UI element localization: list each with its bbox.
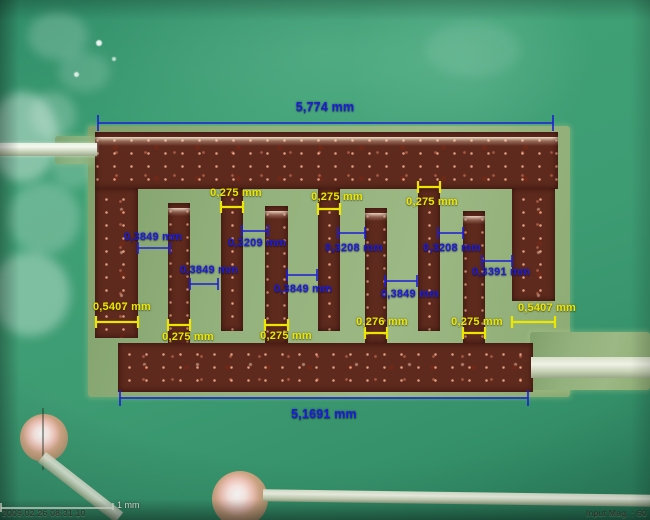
dimension-label: 0,276 mm	[356, 316, 408, 328]
scale-bar-label: 1 mm	[117, 500, 140, 510]
timestamp: 2009.02.26 08:31:10	[2, 508, 86, 518]
dimension-label: 0,275 mm	[210, 187, 262, 199]
dimension-label: 0,5407 mm	[518, 302, 576, 314]
dimension-label: 0,3849 mm	[124, 231, 182, 243]
dimension-label: 0,275 mm	[406, 196, 458, 208]
microscope-capture: 5,774 mm 0,3849 mm 0,3209 mm 0,3208 mm 0…	[0, 0, 650, 520]
dimension-label: 0,275 mm	[311, 191, 363, 203]
magnification-readout: Input Mag. : 60	[586, 508, 647, 518]
dimension-label: 0,3849 mm	[180, 264, 238, 276]
dimension-label: 0,3849 mm	[381, 288, 439, 300]
dimension-label: 0,275 mm	[451, 316, 503, 328]
annotation-overlay	[0, 0, 650, 520]
dimension-label: 0,275 mm	[162, 331, 214, 343]
dimension-label: 0,275 mm	[260, 330, 312, 342]
dimension-label: 5,774 mm	[296, 100, 355, 114]
dimension-label: 0,3208 mm	[325, 242, 383, 254]
dimension-label: 0,3849 mm	[274, 283, 332, 295]
blue-dimension-lines	[98, 115, 553, 406]
dimension-label: 5,1691 mm	[291, 407, 357, 421]
dimension-label: 0,3391 mm	[472, 266, 530, 278]
dimension-label: 0,5407 mm	[93, 301, 151, 313]
dimension-label: 0,3209 mm	[228, 237, 286, 249]
dimension-label: 0,3208 mm	[423, 242, 481, 254]
